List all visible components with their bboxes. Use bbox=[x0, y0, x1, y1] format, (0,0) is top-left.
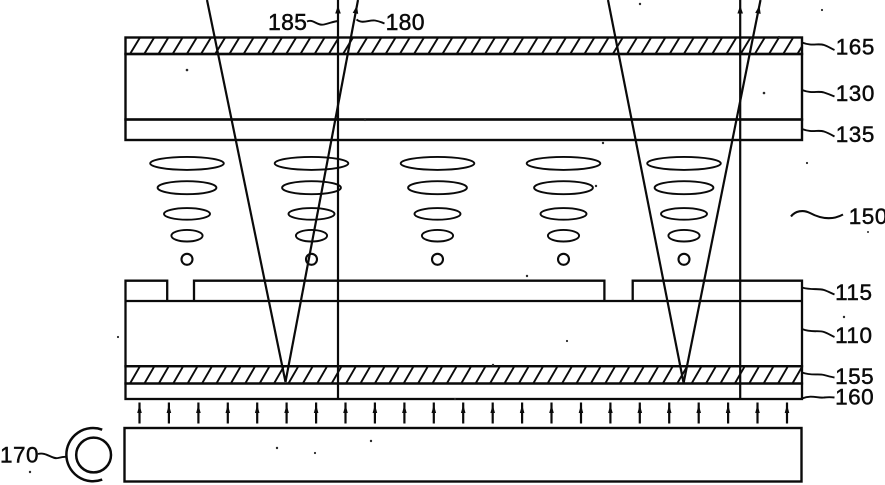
svg-text:185: 185 bbox=[268, 9, 307, 35]
svg-text:115: 115 bbox=[835, 280, 872, 305]
svg-text:130: 130 bbox=[836, 81, 875, 106]
svg-text:110: 110 bbox=[835, 323, 872, 348]
svg-text:180: 180 bbox=[386, 9, 425, 35]
svg-text:150: 150 bbox=[849, 204, 885, 229]
svg-text:170: 170 bbox=[0, 443, 39, 468]
svg-text:135: 135 bbox=[836, 122, 875, 147]
svg-text:165: 165 bbox=[836, 35, 875, 60]
svg-text:160: 160 bbox=[835, 385, 874, 410]
